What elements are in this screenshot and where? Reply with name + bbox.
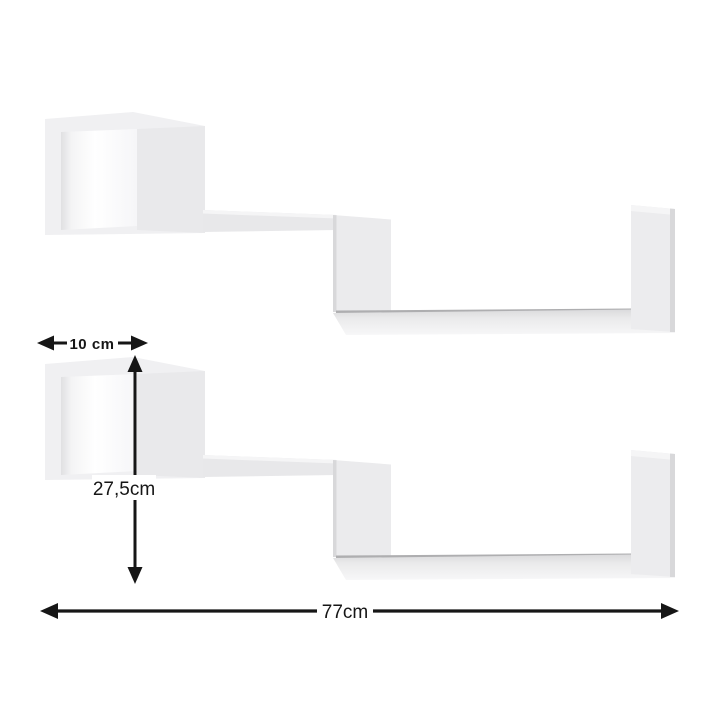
arrowhead-down-icon: [128, 567, 143, 584]
depth-dimension-label: 10 cm: [69, 336, 114, 353]
depth-dimension-arrow: 10 cm: [37, 332, 148, 354]
arrowhead-right-icon: [131, 336, 148, 351]
width-dimension-label: 77cm: [322, 602, 368, 623]
arrowhead-left-icon: [37, 336, 54, 351]
width-dimension-arrow: 77cm: [40, 598, 679, 624]
arrowhead-left-icon: [40, 603, 58, 619]
shelf-unit-bottom: [45, 357, 675, 580]
height-dimension-label: 27,5cm: [93, 479, 155, 500]
dimension-diagram-canvas: 10 cm 27,5cm 77cm: [0, 0, 720, 720]
shelf-unit-top: [45, 112, 675, 335]
product-dimension-image: 10 cm 27,5cm 77cm: [0, 0, 720, 720]
arrowhead-right-icon: [661, 603, 679, 619]
